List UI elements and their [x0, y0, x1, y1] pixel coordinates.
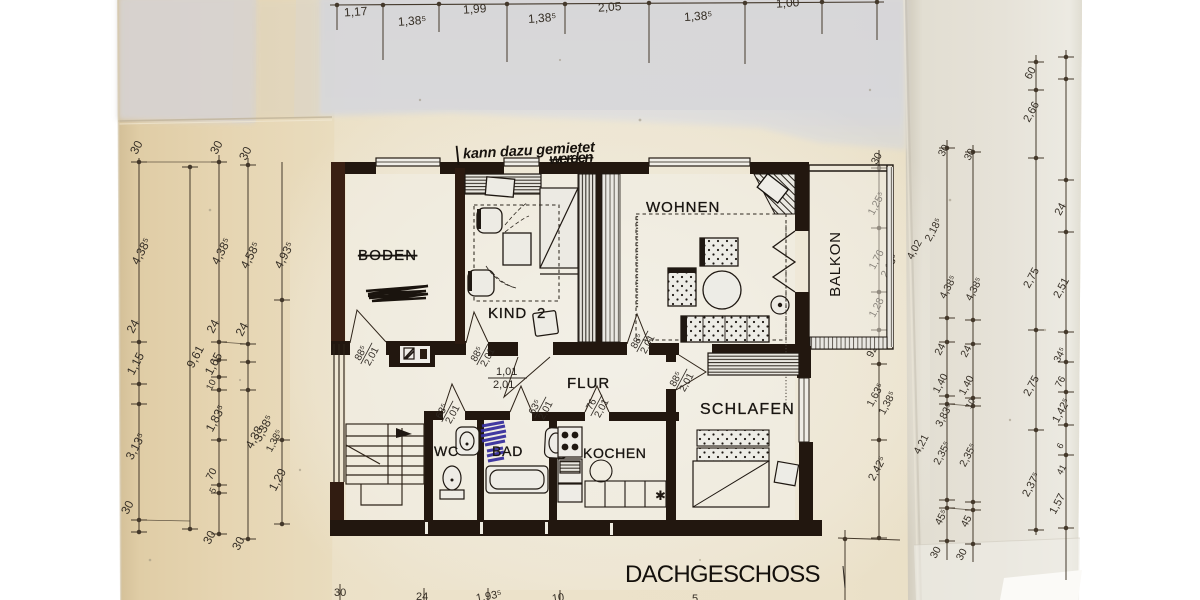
svg-text:SCHLAFEN: SCHLAFEN	[700, 401, 795, 418]
svg-text:1,38⁵: 1,38⁵	[684, 8, 713, 24]
svg-text:✱: ✱	[655, 488, 666, 503]
svg-text:1,17: 1,17	[344, 4, 369, 20]
svg-text:1,38⁵: 1,38⁵	[398, 13, 427, 29]
svg-text:1,99: 1,99	[463, 1, 488, 17]
svg-text:BODEN: BODEN	[358, 247, 417, 264]
svg-text:FLUR: FLUR	[567, 375, 610, 392]
svg-text:BAD: BAD	[492, 443, 523, 459]
svg-text:WC: WC	[434, 443, 459, 459]
svg-text:10: 10	[551, 591, 565, 600]
svg-text:1,01: 1,01	[496, 366, 517, 378]
svg-text:KIND 2: KIND 2	[488, 305, 546, 322]
svg-text:2,01: 2,01	[493, 379, 514, 391]
svg-text:5: 5	[692, 593, 698, 600]
svg-text:30: 30	[334, 587, 346, 599]
svg-text:BALKON: BALKON	[827, 231, 844, 297]
svg-text:werden: werden	[549, 150, 594, 168]
svg-text:KOCHEN: KOCHEN	[583, 445, 647, 461]
svg-text:WOHNEN: WOHNEN	[646, 199, 720, 216]
svg-text:DACHGESCHOSS: DACHGESCHOSS	[625, 561, 821, 588]
svg-text:1,38⁵: 1,38⁵	[528, 10, 557, 26]
svg-text:1,00: 1,00	[775, 0, 800, 11]
svg-text:24: 24	[416, 591, 428, 600]
svg-text:2,05: 2,05	[598, 0, 623, 15]
